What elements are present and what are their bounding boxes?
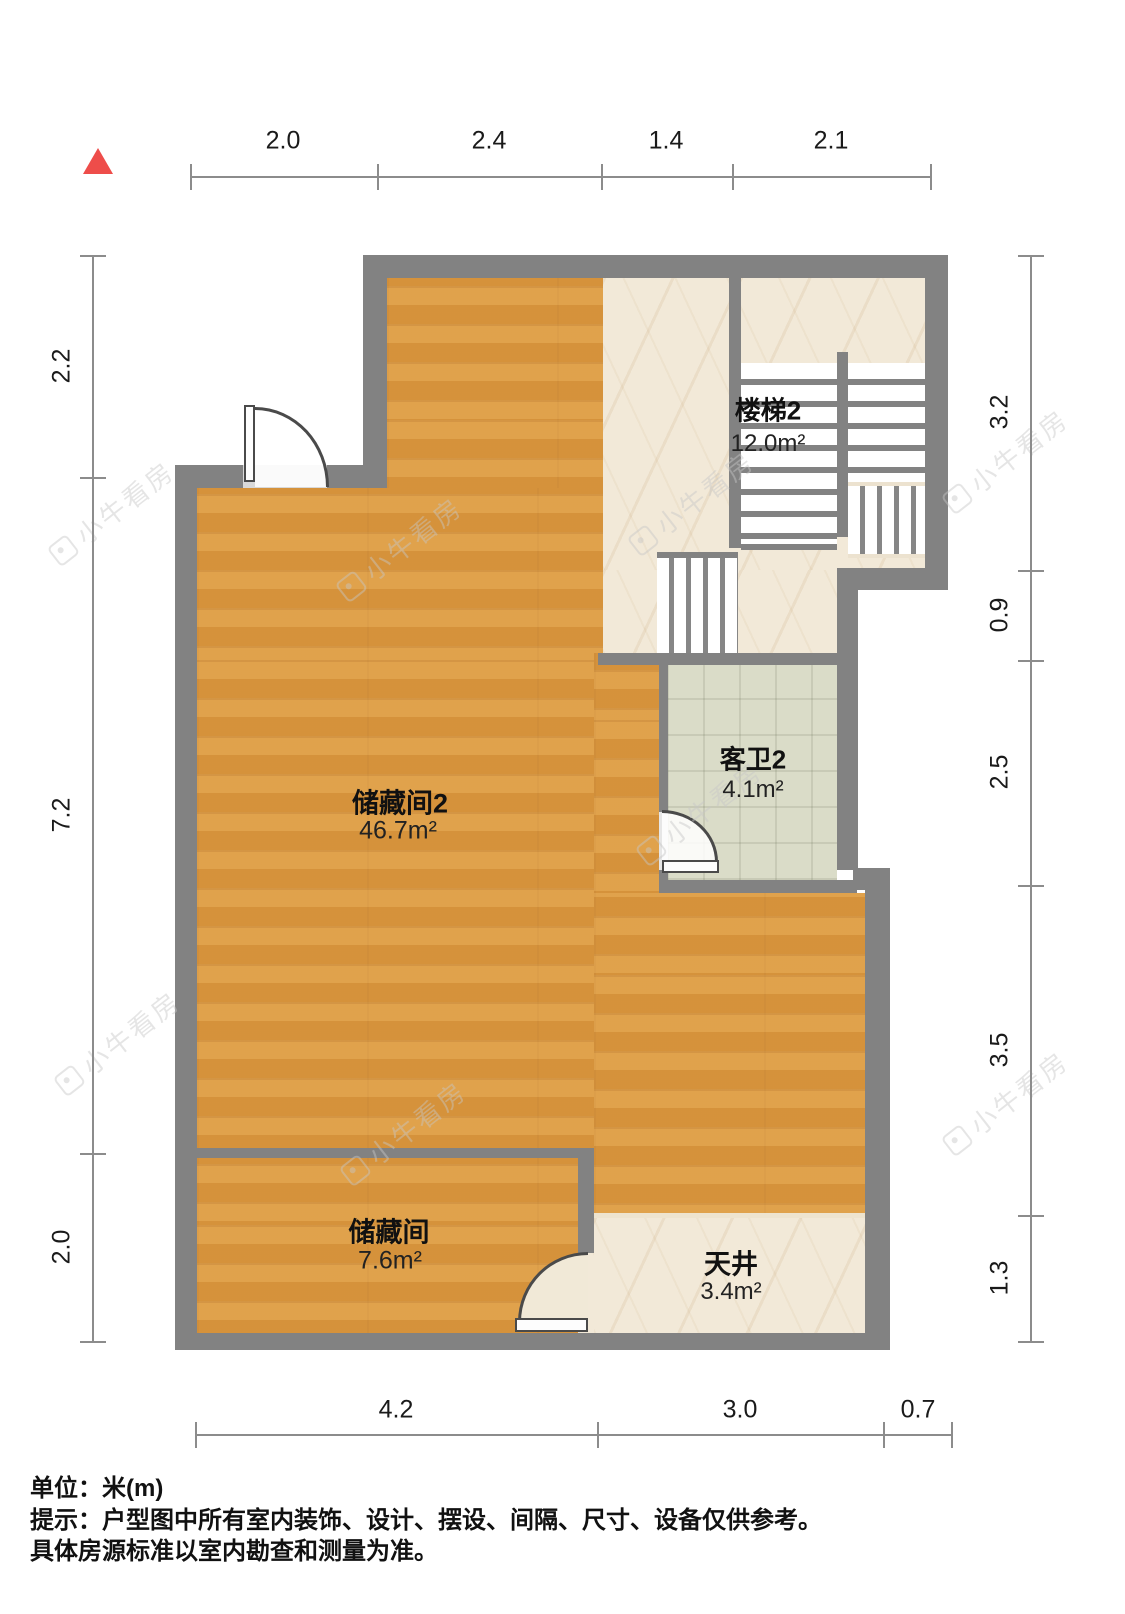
room-label-storage: 储藏间 xyxy=(349,1211,430,1250)
north-indicator-icon xyxy=(83,148,113,174)
watermark-logo-icon xyxy=(52,1063,86,1097)
dim-tick xyxy=(1018,885,1044,887)
dim-label-bottom-1: 4.2 xyxy=(379,1396,414,1425)
watermark: 小牛看房 xyxy=(42,452,181,572)
room-area-guest-bath2: 4.1m² xyxy=(722,776,783,804)
dim-label-right-2: 0.9 xyxy=(986,598,1015,633)
watermark: 小牛看房 xyxy=(48,982,187,1102)
watermark-text: 小牛看房 xyxy=(962,400,1076,501)
wall-upper-left-vertical xyxy=(363,255,387,488)
wall-storage-right xyxy=(578,1148,594,1253)
dim-label-left-2: 7.2 xyxy=(48,798,77,833)
wall-right-upper xyxy=(925,255,948,590)
footer-note-text-1: 提示：户型图中所有室内装饰、设计、摆设、间隔、尺寸、设备仅供参考。 xyxy=(30,1500,822,1535)
footer-unit-text: 单位：米(m) xyxy=(30,1468,163,1503)
dim-tick xyxy=(80,1341,106,1343)
dimension-line-right xyxy=(1030,255,1032,1342)
room-area-patio: 3.4m² xyxy=(700,1278,761,1306)
dim-label-bottom-2: 3.0 xyxy=(723,1396,758,1425)
dim-label-right-4: 3.5 xyxy=(986,1033,1015,1068)
watermark-text: 小牛看房 xyxy=(74,982,188,1083)
dim-tick xyxy=(951,1422,953,1448)
dim-tick xyxy=(195,1422,197,1448)
wall-stair-divider xyxy=(837,352,848,537)
dimension-line-top xyxy=(190,176,930,178)
dim-tick xyxy=(930,164,932,190)
room-label-patio: 天井 xyxy=(704,1243,758,1282)
footer-note-text-2: 具体房源标准以室内勘查和测量为准。 xyxy=(30,1531,438,1566)
door-leaf-bathroom xyxy=(662,860,719,873)
stair-treads-right-flight xyxy=(848,363,925,482)
watermark-text: 小牛看房 xyxy=(68,452,182,553)
wall-bathroom-bottom xyxy=(659,880,857,893)
dim-label-top-2: 2.4 xyxy=(472,127,507,156)
room-area-storage: 7.6m² xyxy=(358,1247,422,1276)
dim-label-left-3: 2.0 xyxy=(48,1230,77,1265)
dim-tick xyxy=(377,164,379,190)
dim-tick xyxy=(883,1422,885,1448)
dim-tick xyxy=(80,255,106,257)
dim-label-right-3: 2.5 xyxy=(986,755,1015,790)
wall-top xyxy=(363,255,948,278)
room-label-storage2: 储藏间2 xyxy=(352,782,448,821)
dim-tick xyxy=(190,164,192,190)
floor-wood-lower xyxy=(594,893,865,1218)
dim-label-bottom-3: 0.7 xyxy=(901,1396,936,1425)
wall-left xyxy=(175,465,197,1350)
dim-tick xyxy=(1018,1341,1044,1343)
stair-railing-right xyxy=(848,482,925,558)
dim-label-right-5: 1.3 xyxy=(986,1261,1015,1296)
dim-tick xyxy=(597,1422,599,1448)
dim-label-top-1: 2.0 xyxy=(266,127,301,156)
door-leaf-main xyxy=(244,405,255,482)
dim-tick xyxy=(80,1153,106,1155)
wall-bathroom-left xyxy=(659,653,668,813)
wall-bathroom-top xyxy=(598,653,858,665)
dim-tick xyxy=(601,164,603,190)
dim-tick xyxy=(732,164,734,190)
room-label-staircase2: 楼梯2 xyxy=(735,391,801,428)
dim-tick xyxy=(1018,660,1044,662)
wall-right-lower xyxy=(865,868,890,1350)
room-label-guest-bath2: 客卫2 xyxy=(720,740,786,777)
watermark-logo-icon xyxy=(46,533,80,567)
room-area-storage2: 46.7m² xyxy=(359,817,437,846)
floorplan-page: { "north_indicator": { "icon": "north-tr… xyxy=(0,0,1125,1614)
dim-tick xyxy=(1018,570,1044,572)
room-area-staircase2: 12.0m² xyxy=(731,430,806,458)
dim-tick xyxy=(80,477,106,479)
dim-label-top-3: 1.4 xyxy=(649,127,684,156)
dim-label-right-1: 3.2 xyxy=(986,395,1015,430)
stair-railing-opening xyxy=(657,552,738,653)
watermark-logo-icon xyxy=(940,1123,974,1157)
wall-bathroom-right xyxy=(837,587,858,870)
dim-label-left-1: 2.2 xyxy=(48,349,77,384)
floor-wood-upper xyxy=(387,278,603,488)
dimension-line-bottom xyxy=(195,1434,953,1436)
dim-tick xyxy=(1018,255,1044,257)
watermark-text: 小牛看房 xyxy=(962,1042,1076,1143)
dim-label-top-4: 2.1 xyxy=(814,127,849,156)
dim-tick xyxy=(1018,1215,1044,1217)
wall-bottom xyxy=(175,1333,890,1350)
door-leaf-storage xyxy=(515,1318,588,1332)
door-arc-main xyxy=(255,407,329,487)
dimension-line-left xyxy=(92,255,94,1342)
